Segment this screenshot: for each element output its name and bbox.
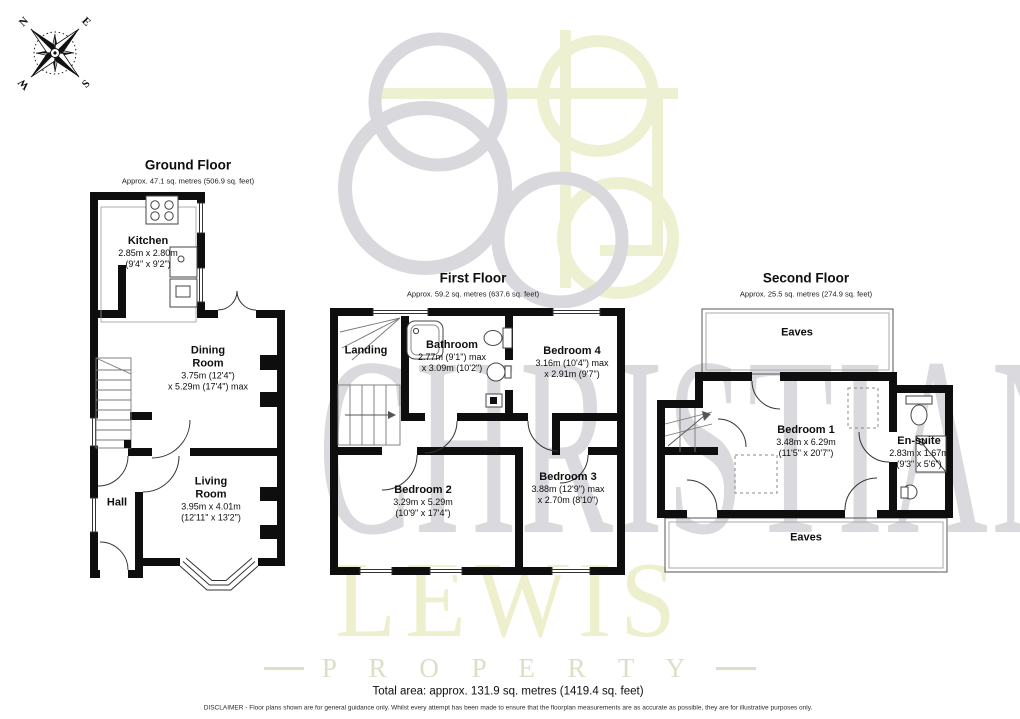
room-name: Bedroom 1 <box>776 424 836 437</box>
brand-logo-watermark <box>345 30 678 302</box>
room-dim: x 2.91m (9'7") <box>536 368 609 379</box>
room-name: Bedroom 4 <box>536 345 609 358</box>
room-name: En-suite <box>889 435 949 448</box>
room-label-bathroom: Bathroom 2.77m (9'1") max x 3.09m (10'2"… <box>418 339 486 373</box>
room-dim: 3.29m x 5.29m <box>393 497 453 508</box>
compass-rose: N E S W <box>0 0 126 124</box>
room-dim: 3.95m x 4.01m <box>181 501 241 512</box>
room-label-dining: Dining Room 3.75m (12'4") x 5.29m (17'4"… <box>168 344 248 391</box>
room-label-eaves-top: Eaves <box>781 327 813 340</box>
room-label-living: Living Room 3.95m x 4.01m (12'11" x 13'2… <box>181 475 241 522</box>
room-label-hall: Hall <box>107 497 127 510</box>
eaves-bottom-outline <box>665 518 947 572</box>
floorplan-drawing: N E S W <box>0 0 1020 719</box>
room-dim: 2.77m (9'1") max <box>418 352 486 363</box>
room-dim: 3.16m (10'4") max <box>536 358 609 369</box>
room-label-landing: Landing <box>345 345 388 358</box>
room-dim: (10'9" x 17'4") <box>393 507 453 518</box>
room-name: Hall <box>107 497 127 510</box>
ground-floor-subtitle: Approx. 47.1 sq. metres (506.9 sq. feet) <box>122 171 254 190</box>
room-label-bedroom1: Bedroom 1 3.48m x 6.29m (11'5" x 20'7") <box>776 424 836 458</box>
room-dim: x 5.29m (17'4") max <box>168 381 248 392</box>
room-label-bedroom2: Bedroom 2 3.29m x 5.29m (10'9" x 17'4") <box>393 484 453 518</box>
floorplan-page: { "compass": {"north":"N","east":"E","so… <box>0 0 1020 719</box>
room-name: Eaves <box>790 532 822 545</box>
room-name: Eaves <box>781 327 813 340</box>
compass-east-label: E <box>79 15 93 29</box>
first-floor-subtitle: Approx. 59.2 sq. metres (637.6 sq. feet) <box>407 284 539 303</box>
room-name: Living Room <box>182 475 240 501</box>
room-dim: 3.75m (12'4") <box>168 370 248 381</box>
hob-icon <box>146 196 178 224</box>
second-floor-stairs <box>665 408 712 452</box>
toilet-icon <box>906 396 932 425</box>
room-dim: x 3.09m (10'2") <box>418 362 486 373</box>
room-label-bedroom3: Bedroom 3 3.88m (12'9") max x 2.70m (8'1… <box>532 471 605 505</box>
room-name: Bedroom 3 <box>532 471 605 484</box>
room-label-bedroom4: Bedroom 4 3.16m (10'4") max x 2.91m (9'7… <box>536 345 609 379</box>
bay-window <box>180 558 258 590</box>
ground-floor-stairs <box>96 358 131 448</box>
room-dim: (9'4" x 9'2") <box>118 258 178 269</box>
room-dim: x 2.70m (8'10") <box>532 494 605 505</box>
eaves-top-outline <box>702 309 893 374</box>
basin-icon <box>901 485 917 499</box>
disclaimer-text: DISCLAIMER - Floor plans shown are for g… <box>204 697 813 716</box>
room-label-kitchen: Kitchen 2.85m x 2.80m (9'4" x 9'2") <box>118 235 178 269</box>
compass-north-label: N <box>17 15 31 29</box>
room-label-ensuite: En-suite 2.83m x 1.67m (9'3" x 5'6") <box>889 435 949 469</box>
room-dim: 3.88m (12'9") max <box>532 484 605 495</box>
room-dim: (12'11" x 13'2") <box>181 512 241 523</box>
first-floor-stairs <box>338 318 400 445</box>
room-name: Landing <box>345 345 388 358</box>
compass-west-label: W <box>16 76 32 92</box>
room-dim: (11'5" x 20'7") <box>776 447 836 458</box>
room-dim: 3.48m x 6.29m <box>776 437 836 448</box>
room-dim: 2.85m x 2.80m <box>118 248 178 259</box>
room-label-eaves-bottom: Eaves <box>790 532 822 545</box>
room-name: Kitchen <box>118 235 178 248</box>
ground-floor-doors <box>98 291 256 570</box>
second-floor-subtitle: Approx. 25.5 sq. metres (274.9 sq. feet) <box>740 284 872 303</box>
room-name: Bathroom <box>418 339 486 352</box>
room-dim: (9'3" x 5'6") <box>889 458 949 469</box>
room-name: Bedroom 2 <box>393 484 453 497</box>
toilet-icon <box>484 328 512 348</box>
room-dim: 2.83m x 1.67m <box>889 448 949 459</box>
boiler-icon <box>486 394 502 407</box>
compass-south-label: S <box>80 78 93 91</box>
room-name: Dining Room <box>179 344 237 370</box>
basin-icon <box>487 363 511 381</box>
